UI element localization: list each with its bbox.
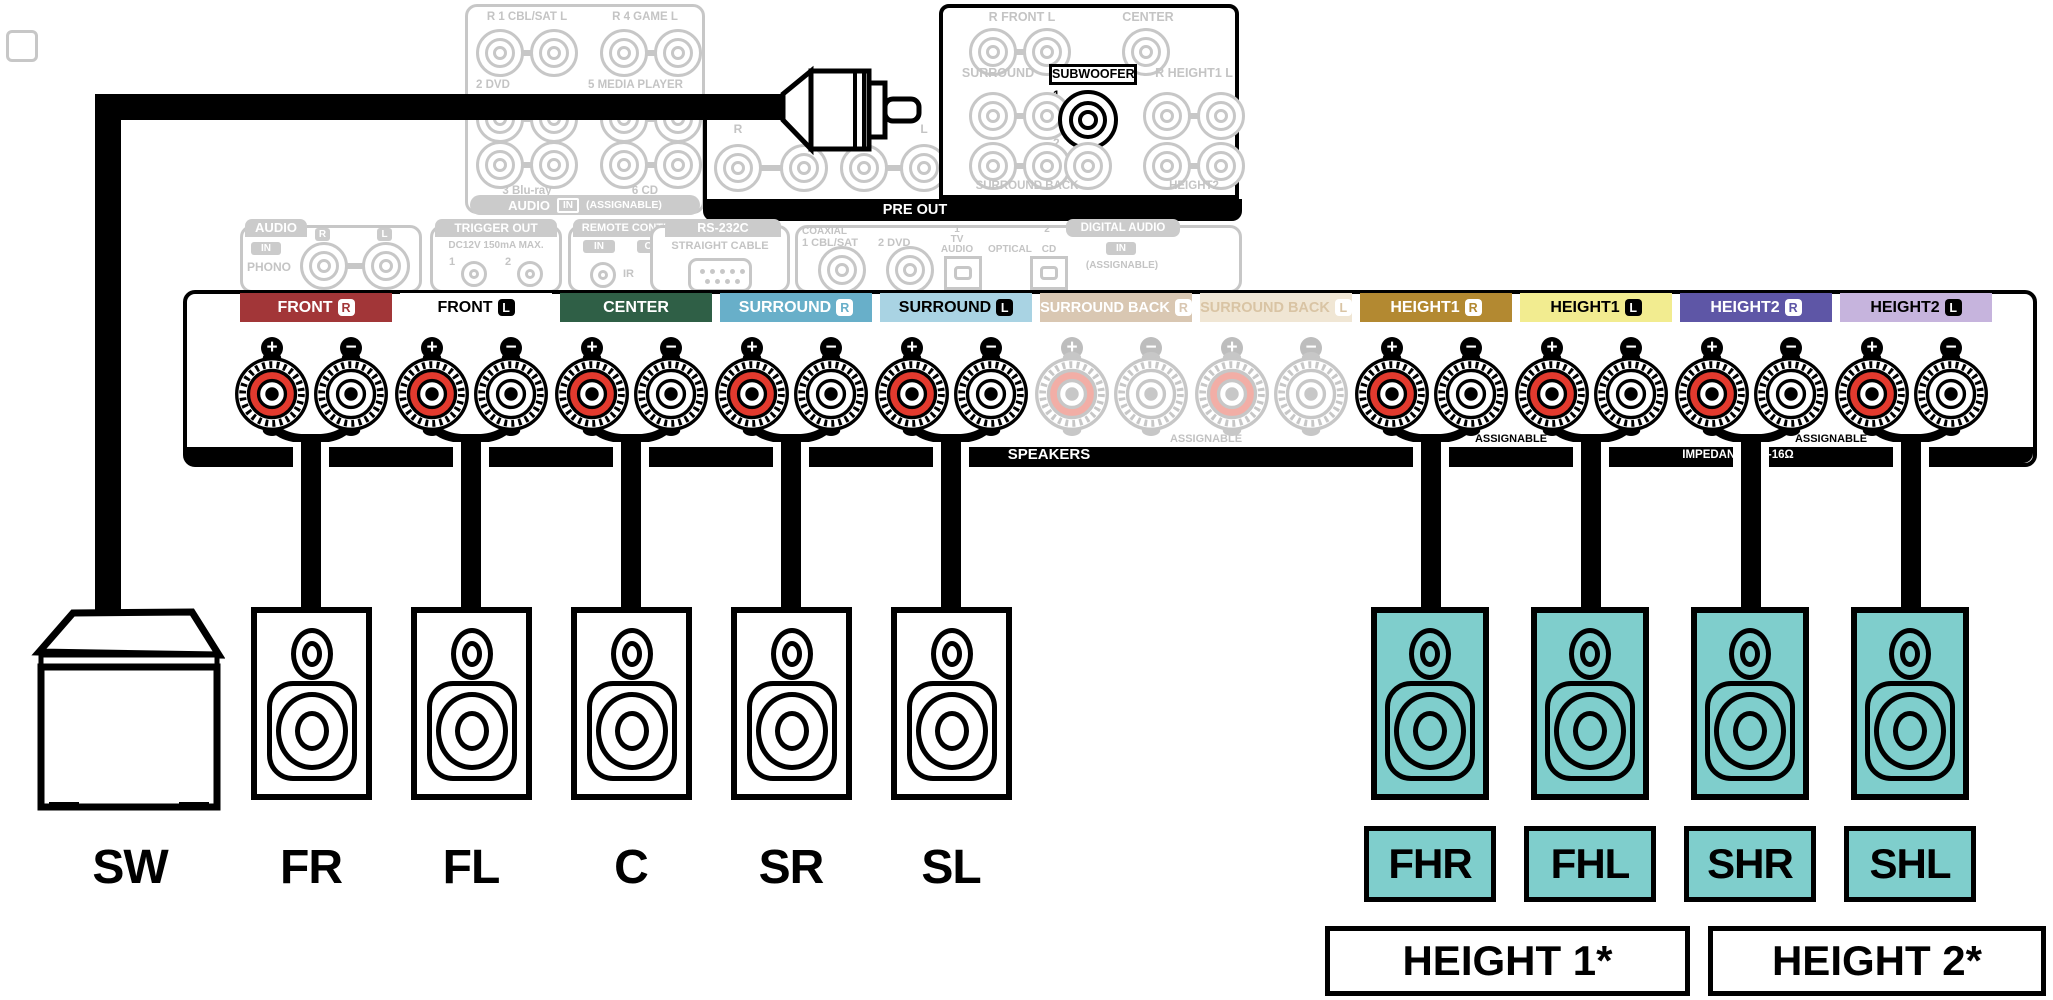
channel-label: CENTER	[603, 299, 669, 317]
rca-jack	[600, 141, 648, 189]
channel-badge: R	[1175, 299, 1192, 316]
binding-post-plus	[390, 352, 474, 436]
binding-post-minus	[1429, 352, 1513, 436]
speaker-front-left	[411, 607, 532, 800]
audio-label: AUDIO	[936, 244, 978, 255]
rca-plug	[755, 63, 940, 158]
rca-jack	[654, 141, 702, 189]
channel-badge: L	[1945, 299, 1962, 316]
label-fr: FR	[250, 840, 372, 895]
channel-badge: L	[1335, 299, 1352, 316]
l-badge: L	[377, 228, 392, 241]
woofer	[747, 681, 837, 781]
channel-tab-surround-back-r: SURROUND BACKR	[1040, 293, 1192, 322]
rca-jack	[300, 242, 348, 290]
height2-group-box: HEIGHT 2*	[1708, 926, 2046, 996]
subwoofer-cable	[108, 94, 784, 120]
channel-badge: L	[498, 299, 515, 316]
channel-tab-height1-r: HEIGHT1R	[1360, 293, 1512, 322]
channel-badge: L	[996, 299, 1013, 316]
label-box-fhr: FHR	[1364, 826, 1496, 902]
channel-label: FRONT	[437, 299, 492, 317]
woofer	[907, 681, 997, 781]
binding-post-minus-inactive	[1269, 352, 1353, 436]
binding-post-plus-inactive	[1030, 352, 1114, 436]
speaker-front-height-left	[1531, 607, 1649, 800]
preout-bar-label: PRE OUT	[855, 202, 975, 218]
rca-jack	[362, 242, 410, 290]
in-badge: IN	[251, 242, 281, 255]
speaker-cable	[781, 434, 801, 610]
channel-label: HEIGHT2	[1710, 299, 1779, 317]
binding-post-plus	[230, 352, 314, 436]
in-badge: IN	[557, 198, 579, 213]
rs232c-tab: RS-232C	[665, 219, 781, 237]
audio-tab: AUDIO	[245, 219, 307, 237]
binding-post-plus	[1670, 352, 1754, 436]
remote-jack	[590, 262, 616, 288]
binding-post-minus	[309, 352, 393, 436]
binding-post-plus	[710, 352, 794, 436]
binding-post-minus	[949, 352, 1033, 436]
channel-label: SURROUND	[899, 299, 991, 317]
jack-label: R 4 GAME L	[586, 11, 704, 23]
phono-label: PHONO	[247, 260, 291, 274]
woofer	[1545, 681, 1635, 781]
cd-label: CD	[1034, 244, 1064, 255]
speaker-cable	[1421, 434, 1441, 610]
jack-label: 5 MEDIA PLAYER	[568, 79, 703, 91]
speakers-bar-label: SPEAKERS	[994, 447, 1104, 463]
channel-tab-front-l: FRONTL	[400, 293, 552, 322]
binding-post-minus	[1909, 352, 1993, 436]
binding-post-plus	[870, 352, 954, 436]
channel-badge: L	[1625, 299, 1642, 316]
rca-jack	[600, 29, 648, 77]
channel-tab-height2-l: HEIGHT2L	[1840, 293, 1992, 322]
woofer	[1385, 681, 1475, 781]
channel-tab-surround-r: SURROUNDR	[720, 293, 872, 322]
woofer	[427, 681, 517, 781]
speaker-surround-height-left	[1851, 607, 1969, 800]
speaker-surround-left	[891, 607, 1012, 800]
binding-post-plus	[1830, 352, 1914, 436]
channel-badge: R	[836, 299, 853, 316]
label-fl: FL	[410, 840, 532, 895]
binding-post-minus	[1589, 352, 1673, 436]
rca-jack	[530, 141, 578, 189]
binding-post-minus	[469, 352, 553, 436]
channel-tab-height1-l: HEIGHT1L	[1520, 293, 1672, 322]
rca-jack	[476, 29, 524, 77]
binding-post-minus-inactive	[1109, 352, 1193, 436]
woofer	[587, 681, 677, 781]
label-box-shl: SHL	[1844, 826, 1976, 902]
speaker-cable	[1741, 434, 1761, 610]
coaxial-jack	[818, 246, 866, 294]
tweeter	[1889, 628, 1931, 680]
trigger-jack	[461, 261, 487, 287]
speaker-cable	[1581, 434, 1601, 610]
tweeter	[1729, 628, 1771, 680]
channel-label: SURROUND BACK	[1200, 300, 1330, 316]
label-sr: SR	[730, 840, 852, 895]
optical-label: OPTICAL	[988, 244, 1032, 255]
channel-label: HEIGHT1	[1390, 299, 1459, 317]
channel-label: FRONT	[277, 299, 332, 317]
rca-jack	[1143, 92, 1191, 140]
jack-label: SURROUND	[938, 66, 1058, 80]
jack-label: HEIGHT2	[1134, 180, 1254, 192]
rca-jack	[530, 29, 578, 77]
panel-fragment	[6, 30, 38, 62]
speaker-front-right	[251, 607, 372, 800]
straight-cable-label: STRAIGHT CABLE	[653, 240, 787, 252]
woofer	[1865, 681, 1955, 781]
speaker-cable	[1901, 434, 1921, 610]
binding-post-minus	[629, 352, 713, 436]
channel-label: HEIGHT1	[1550, 299, 1619, 317]
coaxial-label: COAXIAL	[802, 226, 847, 237]
speaker-cable	[621, 434, 641, 610]
binding-post-plus	[1510, 352, 1594, 436]
jack-label: R HEIGHT1 L	[1134, 66, 1254, 80]
tweeter	[291, 628, 333, 680]
speaker-cable	[941, 434, 961, 610]
binding-post-plus	[550, 352, 634, 436]
speaker-front-height-right	[1371, 607, 1489, 800]
channel-label: SURROUND BACK	[1040, 300, 1170, 316]
in-badge: IN	[1106, 242, 1136, 255]
label-sl: SL	[890, 840, 1012, 895]
coaxial-jack	[886, 246, 934, 294]
trigger-out-tab: TRIGGER OUT	[435, 219, 557, 237]
optical-jack	[944, 256, 982, 290]
speaker-connection-diagram: R 1 CBL/SAT L R 4 GAME L 2 DVD 5 MEDIA P…	[0, 0, 2053, 1000]
label-sw: SW	[69, 840, 191, 895]
trigger-out-panel: TRIGGER OUT DC12V 150mA MAX. 1 2	[430, 225, 562, 293]
subwoofer-jack	[1058, 90, 1118, 150]
jack-number: 1	[449, 256, 455, 268]
assignable-label: (ASSIGNABLE)	[586, 199, 662, 211]
label-box-fhl: FHL	[1524, 826, 1656, 902]
jack-label: R	[728, 122, 748, 136]
speaker-surround-right	[731, 607, 852, 800]
label-c: C	[570, 840, 692, 895]
binding-post-plus-inactive	[1190, 352, 1274, 436]
binding-post-minus	[789, 352, 873, 436]
rca-jack	[969, 92, 1017, 140]
assignable-label: (ASSIGNABLE)	[1060, 260, 1184, 271]
tweeter	[611, 628, 653, 680]
subwoofer-label-box: SUBWOOFER	[1049, 64, 1137, 85]
binding-post-plus	[1350, 352, 1434, 436]
jack-label: R FRONT L	[962, 10, 1082, 24]
speaker-center	[571, 607, 692, 800]
in-badge: IN	[583, 240, 615, 253]
channel-label: SURROUND	[739, 299, 831, 317]
channel-badge: R	[1785, 299, 1802, 316]
subwoofer-cable	[95, 94, 121, 617]
tweeter	[771, 628, 813, 680]
label-box-shr: SHR	[1684, 826, 1816, 902]
jack-label: 2 DVD	[476, 79, 510, 91]
r-badge: R	[315, 228, 330, 241]
jack-label: CENTER	[1088, 10, 1208, 24]
woofer	[267, 681, 357, 781]
channel-tab-surround-l: SURROUNDL	[880, 293, 1032, 322]
audio-phono-panel: AUDIO IN PHONO R L	[240, 225, 422, 293]
digital-audio-panel: COAXIAL 1 CBL/SAT 2 DVD 1 TV AUDIO OPTIC…	[795, 225, 1242, 293]
rca-jack	[476, 141, 524, 189]
tweeter	[1569, 628, 1611, 680]
height1-group-box: HEIGHT 1*	[1325, 926, 1690, 996]
speaker-cable	[301, 434, 321, 610]
jack-number: 2	[1032, 224, 1062, 235]
tweeter	[1409, 628, 1451, 680]
preout-panel: R FRONT L CENTER SURROUND SUBWOOFER 1 R …	[939, 4, 1239, 199]
rs232c-connector	[688, 258, 752, 292]
ir-label: IR	[623, 268, 634, 280]
jack-label: R 1 CBL/SAT L	[468, 11, 586, 23]
channel-tab-height2-r: HEIGHT2R	[1680, 293, 1832, 322]
preout-bar: PRE OUT	[703, 199, 1242, 221]
rs232c-panel: RS-232C STRAIGHT CABLE	[650, 225, 790, 293]
rca-jack	[654, 29, 702, 77]
channel-tab-front-r: FRONTR	[240, 293, 392, 322]
channel-badge: R	[1465, 299, 1482, 316]
rca-jack	[1197, 92, 1245, 140]
jack-label: SURROUND BACK	[962, 180, 1092, 192]
audio-label: AUDIO	[508, 198, 550, 213]
channel-badge: R	[338, 299, 355, 316]
binding-post-minus	[1749, 352, 1833, 436]
speaker-cable	[461, 434, 481, 610]
tweeter	[931, 628, 973, 680]
jack-number: 2	[505, 256, 511, 268]
trigger-jack	[517, 261, 543, 287]
channel-tab-surround-back-l: SURROUND BACKL	[1200, 293, 1352, 322]
tweeter	[451, 628, 493, 680]
channel-label: HEIGHT2	[1870, 299, 1939, 317]
trigger-spec-label: DC12V 150mA MAX.	[433, 240, 559, 251]
woofer	[1705, 681, 1795, 781]
speaker-surround-height-right	[1691, 607, 1809, 800]
subwoofer-speaker	[25, 595, 225, 820]
audio-in-bar: AUDIO IN (ASSIGNABLE)	[470, 195, 700, 215]
channel-tab-center: CENTER	[560, 293, 712, 322]
digital-audio-tab: DIGITAL AUDIO	[1066, 219, 1180, 237]
